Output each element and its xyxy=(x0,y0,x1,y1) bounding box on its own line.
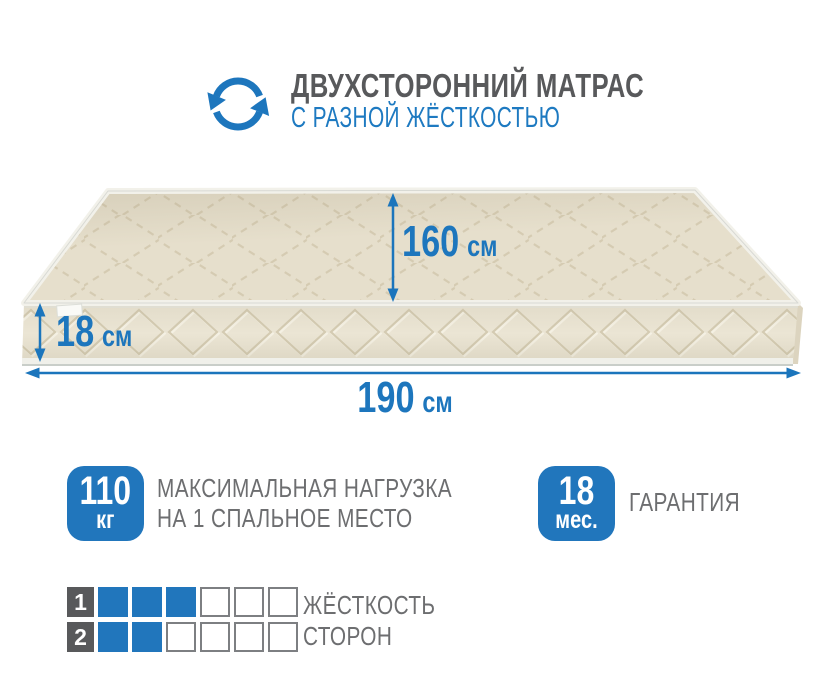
firmness-row-2: 2 xyxy=(67,622,298,652)
firmness-row-1: 1 xyxy=(67,587,298,617)
max-load-caption-line2: НА 1 СПАЛЬНОЕ МЕСТО xyxy=(157,503,452,533)
height-dimension-label: 18 см xyxy=(56,310,132,354)
firmness-cell xyxy=(234,587,264,617)
warranty-value: 18 xyxy=(555,475,597,508)
max-load-caption: МАКСИМАЛЬНАЯ НАГРУЗКА НА 1 СПАЛЬНОЕ МЕСТ… xyxy=(157,473,452,533)
length-dimension-label: 190 см xyxy=(249,376,561,420)
firmness-cell xyxy=(234,622,264,652)
firmness-cell xyxy=(98,587,128,617)
warranty-badge: 18 мес. xyxy=(538,466,615,541)
rotate-sync-icon xyxy=(203,72,273,136)
max-load-badge: 110 кг xyxy=(67,466,144,541)
length-unit: см xyxy=(422,386,452,420)
width-value: 160 xyxy=(402,220,459,264)
length-value: 190 xyxy=(357,376,414,420)
firmness-row-label: 2 xyxy=(67,622,94,652)
max-load-caption-line1: МАКСИМАЛЬНАЯ НАГРУЗКА xyxy=(157,473,452,503)
firmness-cell xyxy=(98,622,128,652)
firmness-cell xyxy=(268,622,298,652)
firmness-caption: ЖЁСТКОСТЬ СТОРОН xyxy=(303,590,435,652)
firmness-cell xyxy=(132,622,162,652)
warranty-caption: ГАРАНТИЯ xyxy=(629,487,740,517)
firmness-cell xyxy=(132,587,162,617)
firmness-caption-line2: СТОРОН xyxy=(303,621,435,652)
width-unit: см xyxy=(467,230,497,264)
firmness-scale: 12 xyxy=(67,587,298,657)
firmness-cell xyxy=(268,587,298,617)
firmness-cell xyxy=(166,622,196,652)
mattress-infographic: ДВУХСТОРОННИЙ МАТРАС С РАЗНОЙ ЖЁСТКОСТЬЮ xyxy=(0,0,816,700)
firmness-cell xyxy=(200,587,230,617)
page-title: ДВУХСТОРОННИЙ МАТРАС xyxy=(291,67,644,105)
height-unit: см xyxy=(102,320,132,354)
firmness-row-label: 1 xyxy=(67,587,94,617)
max-load-value: 110 xyxy=(80,475,132,508)
warranty-caption-line1: ГАРАНТИЯ xyxy=(629,487,740,517)
firmness-cell xyxy=(166,587,196,617)
height-value: 18 xyxy=(56,310,94,354)
firmness-cell xyxy=(200,622,230,652)
page-subtitle: С РАЗНОЙ ЖЁСТКОСТЬЮ xyxy=(291,102,560,135)
firmness-caption-line1: ЖЁСТКОСТЬ xyxy=(303,590,435,621)
warranty-unit: мес. xyxy=(555,508,597,532)
width-dimension-label: 160 см xyxy=(402,220,497,264)
